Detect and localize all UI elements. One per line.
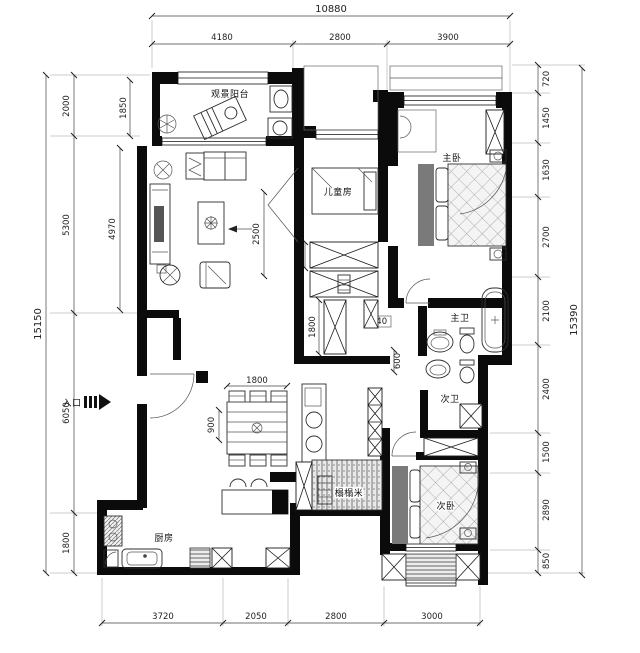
light-well-outline xyxy=(304,66,378,130)
dim-right-4: 2700 xyxy=(542,226,552,248)
dim-left-inner-1: 1850 xyxy=(119,97,129,119)
bed-quilt xyxy=(448,164,506,246)
dim-right-8: 2890 xyxy=(542,499,552,521)
dim-top-1: 4180 xyxy=(211,33,233,43)
label-second-bath: 次卫 xyxy=(440,393,459,405)
round-table xyxy=(157,265,180,285)
lounge-chair xyxy=(194,96,247,139)
dim-top-2: 2800 xyxy=(329,33,351,43)
dim-bottom-1: 3720 xyxy=(152,612,174,622)
sofa xyxy=(204,152,246,180)
door-swing-marker xyxy=(268,168,298,242)
dim-left-1: 2000 xyxy=(62,95,72,117)
dim-right-3: 1630 xyxy=(542,159,552,181)
label-master-bedroom: 主卧 xyxy=(442,152,461,164)
dim-right-2: 1450 xyxy=(542,107,552,129)
label-entrance: 入口 xyxy=(62,398,81,409)
bed-headboard xyxy=(418,164,434,246)
dim-right-6: 2400 xyxy=(542,378,552,400)
dim-bottom-3: 2800 xyxy=(325,612,347,622)
plant-icon xyxy=(154,161,172,179)
tv-cabinet xyxy=(150,184,170,264)
section-arrow xyxy=(228,226,252,233)
dim-left-inner-2: 4970 xyxy=(108,218,118,240)
dim-closet-1800: 1800 xyxy=(308,316,318,338)
label-balcony: 观景阳台 xyxy=(211,88,249,100)
kitchen-mat xyxy=(190,548,210,568)
dim-left-4: 1800 xyxy=(62,532,72,554)
dim-right-5: 2100 xyxy=(542,300,552,322)
plant-icon xyxy=(158,115,176,133)
dim-top-3: 3900 xyxy=(437,33,459,43)
label-master-bath: 主卫 xyxy=(450,312,469,324)
washing-machine xyxy=(268,118,292,138)
kitchen-furniture xyxy=(104,479,290,568)
armchair xyxy=(200,262,230,288)
room-labels: 观景阳台 儿童房 主卧 主卫 次卫 次卧 厨房 榻榻米 入口 xyxy=(62,88,469,544)
floor-plan-svg: 10880 4180 2800 3900 15150 2000 5300 605… xyxy=(0,0,640,653)
label-kitchen: 厨房 xyxy=(154,532,173,544)
label-kids-room: 儿童房 xyxy=(324,186,353,198)
dim-left-2: 5300 xyxy=(62,214,72,236)
second-bath-fixtures xyxy=(424,360,482,456)
floor-plan-canvas: 10880 4180 2800 3900 15150 2000 5300 605… xyxy=(0,0,640,653)
dim-top-total: 10880 xyxy=(315,4,347,15)
dim-dining-900: 900 xyxy=(207,417,217,433)
closet-area xyxy=(310,242,378,354)
dim-right-total: 15390 xyxy=(569,304,580,336)
dim-living-width: 2500 xyxy=(252,223,262,245)
tatami-floor xyxy=(312,460,382,510)
dim-bottom-4: 3000 xyxy=(421,612,443,622)
dining-furniture xyxy=(227,391,287,466)
dim-left-total: 15150 xyxy=(33,308,44,340)
label-second-bedroom: 次卧 xyxy=(436,500,455,512)
dim-closet-600b: 600 xyxy=(393,353,403,369)
dim-right-1: 720 xyxy=(542,71,552,87)
entrance-arrow-icon xyxy=(84,394,111,410)
stove xyxy=(104,516,122,546)
dim-bottom-2: 2050 xyxy=(245,612,267,622)
bar-counter xyxy=(222,479,288,514)
laundry-cabinet xyxy=(270,86,292,112)
dim-right-7: 1500 xyxy=(542,441,552,463)
dim-dining-1800: 1800 xyxy=(246,376,268,386)
master-bedroom-furniture xyxy=(398,110,506,260)
side-table-lamp xyxy=(186,153,204,179)
label-tatami: 榻榻米 xyxy=(335,487,364,499)
living-room-furniture xyxy=(150,152,298,288)
deck-floor xyxy=(406,554,456,580)
bed-headboard xyxy=(392,466,408,544)
coffee-table xyxy=(198,202,224,244)
dim-right-9: 850 xyxy=(542,553,552,569)
